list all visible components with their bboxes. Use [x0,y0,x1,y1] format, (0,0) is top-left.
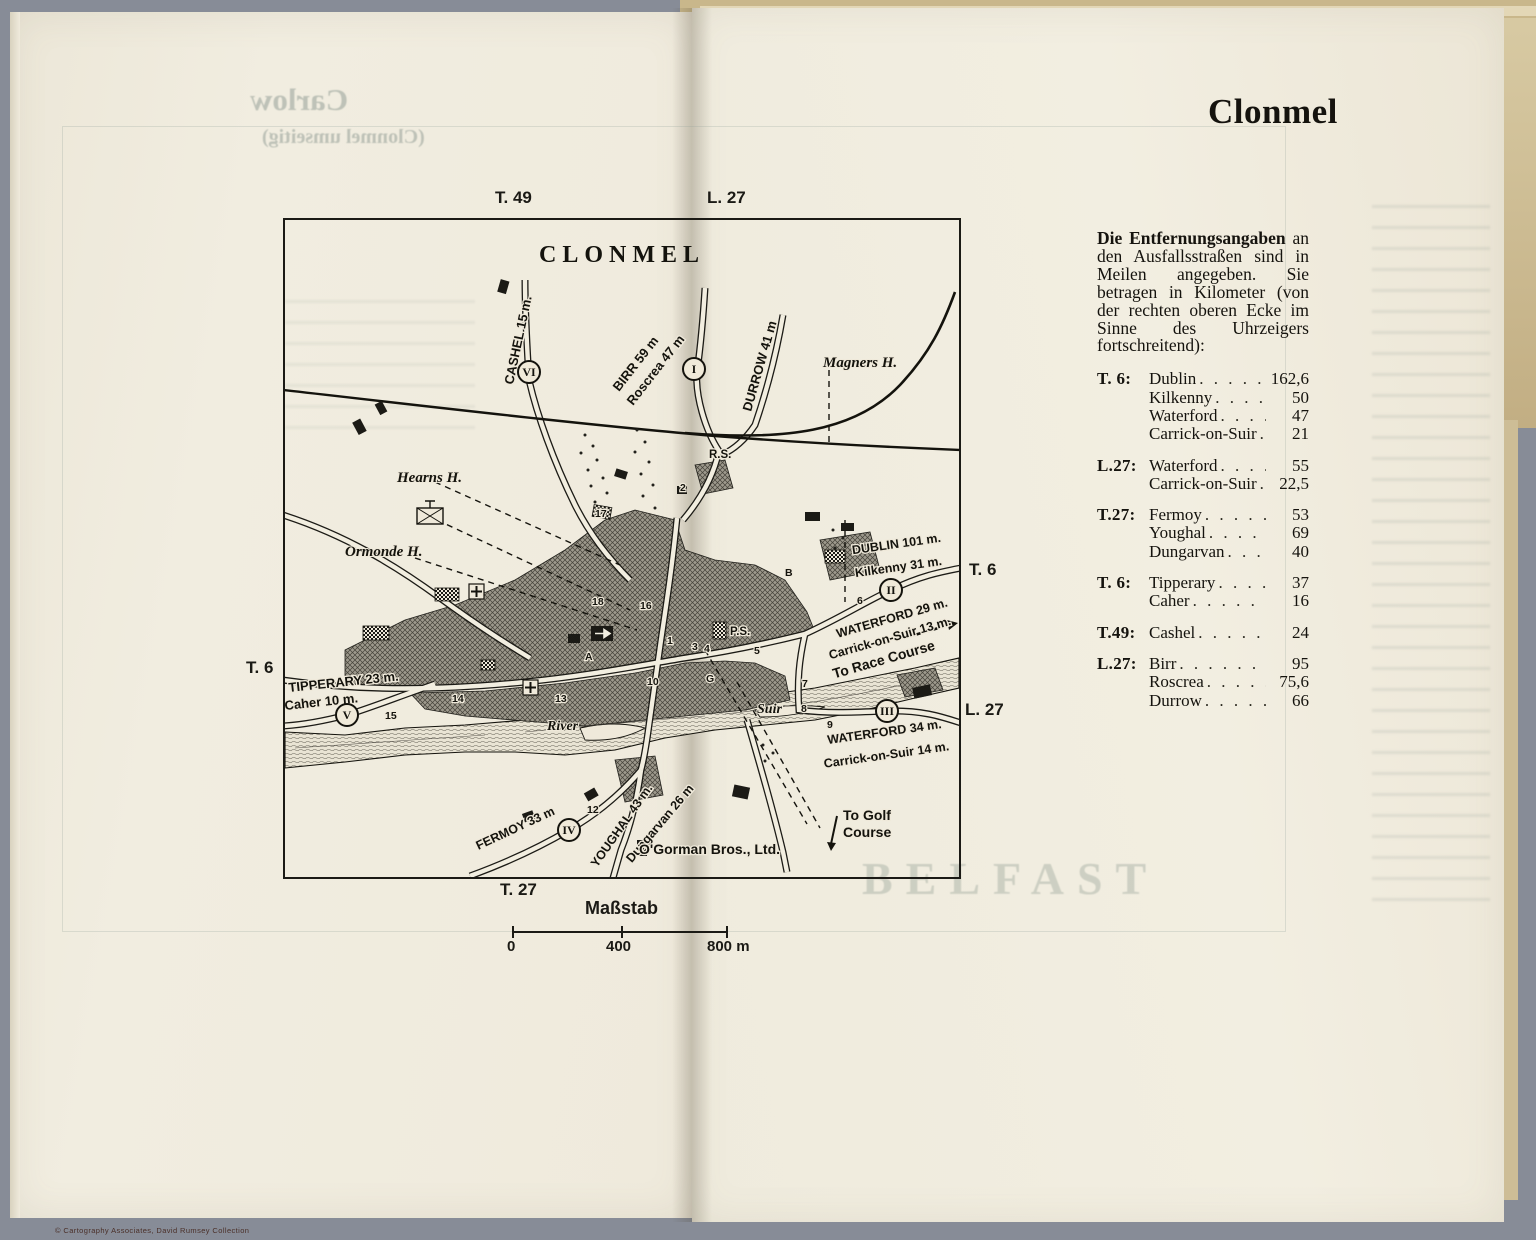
map-number-4: 4 [704,643,710,655]
distance-row: T.27:Fermoy. . . . . . . . . . . .53 [1097,506,1309,524]
map-canvas: CLONMEL CASHEL 15 m. BIRR 59 m Roscrea 4… [285,220,959,877]
route-label: T.49: [1097,624,1149,642]
map-number-12: 12 [587,804,599,816]
label-ogorman: O'Gorman Bros., Ltd. [639,841,780,857]
route-label [1097,543,1149,561]
distance-row: Kilkenny. . . . . . . . . . . .50 [1097,389,1309,407]
distance-row: Roscrea. . . . . . . . . . . .75,6 [1097,673,1309,691]
distance-value: 53 [1269,506,1309,524]
map-number-16: 16 [640,600,652,612]
destination-name: Dublin [1149,370,1196,388]
destination-name: Youghal [1149,524,1206,542]
route-label: L.27: [1097,457,1149,475]
route-marker-V: V [343,708,352,722]
page-stack-edge-right-thin [1504,420,1518,1200]
distance-list: T. 6:Dublin. . . . . . . . . . . .162,6K… [1097,370,1309,709]
distance-group: T.49:Cashel. . . . . . . . . . . .24 [1097,624,1309,642]
golf-arrow [827,816,837,851]
label-block-a: A [585,651,593,663]
label-hearns-h: Hearns H. [396,470,462,486]
distance-value: 75,6 [1269,673,1309,691]
destination-name: Kilkenny [1149,389,1212,407]
leader-dots: . . . . . . . . . . . . [1228,543,1266,561]
distance-value: 16 [1269,592,1309,610]
distance-group: L.27:Birr. . . . . . . . . . . .95Roscre… [1097,655,1309,710]
destination-name: Waterford [1149,407,1217,425]
route-marker-II: II [886,583,896,597]
route-label [1097,407,1149,425]
label-to-golf-2: Course [843,824,891,840]
leader-dots: . . . . . . . . . . . . [1260,475,1266,493]
route-label [1097,524,1149,542]
distance-group: T. 6:Dublin. . . . . . . . . . . .162,6K… [1097,370,1309,443]
label-to-golf-1: To Golf [843,807,891,823]
destination-name: Carrick-on-Suir [1149,475,1257,493]
scale-label-800: 800 m [707,938,750,955]
map-number-5: 5 [754,645,760,657]
distance-row: Youghal. . . . . . . . . . . .69 [1097,524,1309,542]
label-suir: Suir [757,702,782,717]
distance-row: Carrick-on-Suir. . . . . . . . . . . .22… [1097,475,1309,493]
distance-row: Durrow. . . . . . . . . . . .66 [1097,692,1309,710]
distance-row: Waterford. . . . . . . . . . . .47 [1097,407,1309,425]
route-label: L.27: [1097,655,1149,673]
distance-row: T.49:Cashel. . . . . . . . . . . .24 [1097,624,1309,642]
leader-dots: . . . . . . . . . . . . [1199,370,1266,388]
leader-dots: . . . . . . . . . . . . [1260,425,1266,443]
destination-name: Waterford [1149,457,1217,475]
distance-value: 95 [1269,655,1309,673]
destination-name: Tipperary [1149,574,1215,592]
route-marker-IV: IV [562,823,576,837]
edge-label-t6-right: T. 6 [969,560,996,580]
route-marker-VI: VI [522,365,536,379]
clonmel-map: CLONMEL CASHEL 15 m. BIRR 59 m Roscrea 4… [283,218,961,879]
distance-row: Dungarvan. . . . . . . . . . . .40 [1097,543,1309,561]
distance-group: T.27:Fermoy. . . . . . . . . . . .53Youg… [1097,506,1309,561]
scale-label-400: 400 [606,938,631,955]
route-label [1097,673,1149,691]
edge-label-l27-top: L. 27 [707,188,746,208]
scale-label-0: 0 [507,938,515,955]
edge-label-l27-right: L. 27 [965,700,1004,720]
destination-name: Durrow [1149,692,1202,710]
map-number-8: 8 [801,703,807,715]
ghost-text-clonmel-umseitig: (Clonmel umseitig) [262,126,425,149]
leader-dots: . . . . . . . . . . . . [1218,574,1266,592]
map-number-15: 15 [385,710,397,722]
map-number-14: 14 [452,693,464,705]
label-block-b: B [785,567,793,579]
route-label [1097,475,1149,493]
leader-dots: . . . . . . . . . . . . [1209,524,1266,542]
route-label [1097,592,1149,610]
route-label: T.27: [1097,506,1149,524]
destination-name: Carrick-on-Suir [1149,425,1257,443]
distance-value: 24 [1269,624,1309,642]
map-number-7: 7 [802,678,808,690]
legend-intro: Die Entfernungsangaben an den Ausfallsst… [1097,230,1309,355]
destination-name: Cashel [1149,624,1195,642]
scale-tick-800 [726,926,728,938]
distance-value: 66 [1269,692,1309,710]
route-marker-I: I [692,362,697,376]
distance-group: L.27:Waterford. . . . . . . . . . . .55C… [1097,457,1309,494]
scale-bar [512,931,728,933]
distance-row: Caher. . . . . . . . . . . .16 [1097,592,1309,610]
label-ps: P.S. [730,626,750,638]
leader-dots: . . . . . . . . . . . . [1220,457,1266,475]
destination-name: Roscrea [1149,673,1204,691]
distance-value: 69 [1269,524,1309,542]
leader-dots: . . . . . . . . . . . . [1207,673,1266,691]
map-title: CLONMEL [539,242,705,268]
distance-legend: Die Entfernungsangaben an den Ausfallsst… [1097,230,1309,710]
edge-label-t6-left: T. 6 [246,658,273,678]
page-title: Clonmel [1208,92,1338,132]
map-number-13: 13 [555,693,567,705]
label-magners-h: Magners H. [822,355,897,371]
distance-value: 55 [1269,457,1309,475]
distance-value: 22,5 [1269,475,1309,493]
destination-name: Birr [1149,655,1176,673]
arrow-box [591,626,613,641]
scale-title: Maßstab [585,898,658,919]
map-number-10: 10 [647,676,659,688]
distance-group: T. 6:Tipperary. . . . . . . . . . . .37C… [1097,574,1309,611]
map-number-17: 17 [595,508,607,520]
edge-label-t27-bottom: T. 27 [500,880,537,900]
distance-value: 162,6 [1269,370,1309,388]
map-number-1: 1 [667,635,673,647]
route-label [1097,692,1149,710]
distance-row: L.27:Birr. . . . . . . . . . . .95 [1097,655,1309,673]
leader-dots: . . . . . . . . . . . . [1220,407,1266,425]
map-number-3: 3 [692,641,698,653]
distance-value: 47 [1269,407,1309,425]
ghost-text-column [1372,205,1490,915]
leader-dots: . . . . . . . . . . . . [1193,592,1266,610]
label-railway-station: R.S. [709,449,731,461]
label-ormonde-h: Ormonde H. [345,544,423,560]
distance-value: 40 [1269,543,1309,561]
label-river: River [546,719,579,734]
route-label: T. 6: [1097,370,1149,388]
left-page-edge [10,12,20,1218]
envelope-symbol [417,501,443,524]
leader-dots: . . . . . . . . . . . . [1198,624,1266,642]
destination-name: Caher [1149,592,1190,610]
leader-dots: . . . . . . . . . . . . [1179,655,1266,673]
leader-dots: . . . . . . . . . . . . [1205,506,1266,524]
distance-row: T. 6:Dublin. . . . . . . . . . . .162,6 [1097,370,1309,388]
distance-row: T. 6:Tipperary. . . . . . . . . . . .37 [1097,574,1309,592]
scale-tick-0 [512,926,514,938]
route-marker-III: III [880,704,894,718]
map-number-2: 2 [680,482,686,494]
scanned-atlas-page: { "page": { "title": "Clonmel", "copyrig… [0,0,1536,1240]
scale-tick-400 [621,926,623,938]
distance-row: L.27:Waterford. . . . . . . . . . . .55 [1097,457,1309,475]
copyright-note: © Cartography Associates, David Rumsey C… [55,1226,249,1235]
distance-value: 50 [1269,389,1309,407]
page-stack-edge-right [1500,28,1536,428]
distance-value: 21 [1269,425,1309,443]
leader-dots: . . . . . . . . . . . . [1215,389,1266,407]
map-number-18: 18 [592,596,604,608]
map-number-6: 6 [857,595,863,607]
destination-name: Fermoy [1149,506,1202,524]
destination-name: Dungarvan [1149,543,1225,561]
distance-row: Carrick-on-Suir. . . . . . . . . . . .21 [1097,425,1309,443]
label-block-g: G [706,673,714,685]
map-number-9: 9 [827,719,833,731]
distance-value: 37 [1269,574,1309,592]
leader-dots: . . . . . . . . . . . . [1205,692,1266,710]
edge-label-t49: T. 49 [495,188,532,208]
ghost-text-carlow: Carlow [250,82,348,118]
route-label: T. 6: [1097,574,1149,592]
route-label [1097,389,1149,407]
route-label [1097,425,1149,443]
